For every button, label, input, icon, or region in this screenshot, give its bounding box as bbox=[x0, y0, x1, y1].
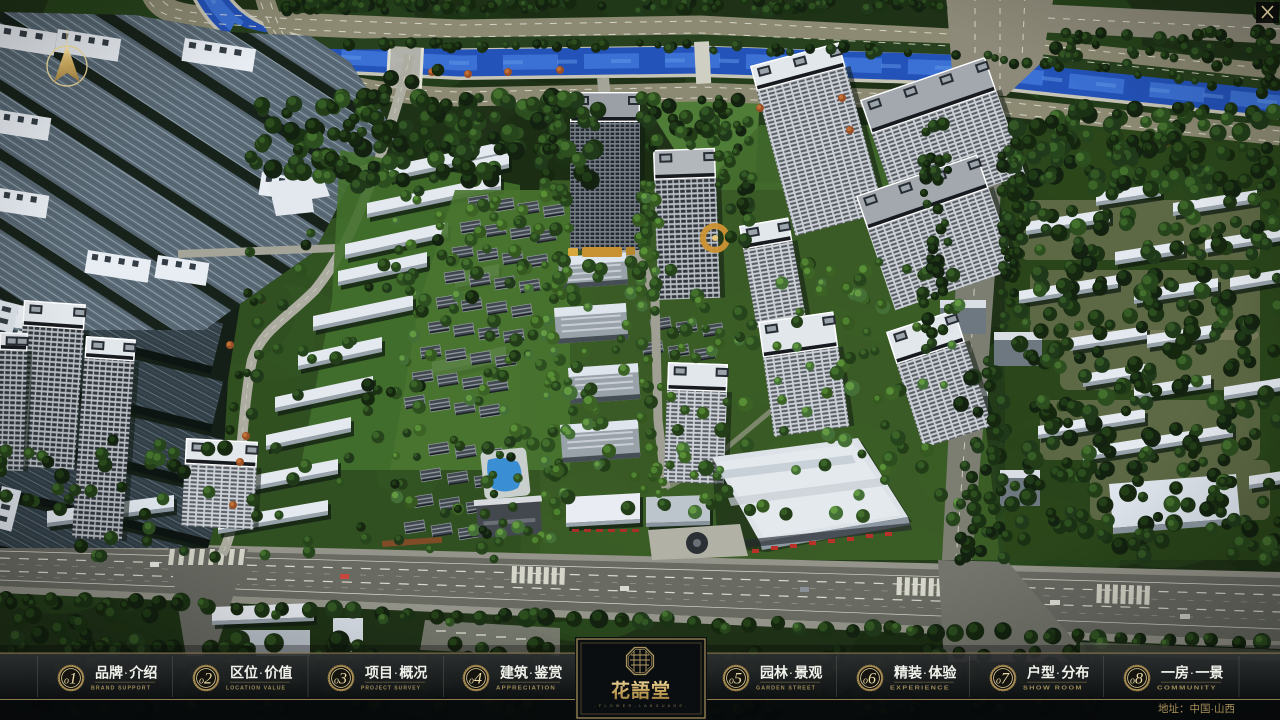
svg-text:- F L O W E R - L A N G U A G: - F L O W E R - L A N G U A G E - bbox=[594, 704, 687, 708]
svg-text:BRAND SUPPORT: BRAND SUPPORT bbox=[91, 685, 151, 691]
svg-text:地址：中国·山西: 地址：中国·山西 bbox=[1158, 702, 1235, 715]
svg-text:EXPERIENCE: EXPERIENCE bbox=[890, 685, 950, 691]
svg-text:GARDEN STREET: GARDEN STREET bbox=[756, 685, 816, 691]
svg-text:SHOW ROOM: SHOW ROOM bbox=[1023, 685, 1083, 691]
svg-text:APPRECIATION: APPRECIATION bbox=[496, 685, 556, 691]
svg-text:LOCATION VALUE: LOCATION VALUE bbox=[226, 685, 286, 691]
svg-text:花語堂: 花語堂 bbox=[611, 679, 671, 702]
svg-text:COMMUNITY: COMMUNITY bbox=[1157, 685, 1217, 691]
svg-text:PROJECT SURVEY: PROJECT SURVEY bbox=[361, 685, 421, 691]
